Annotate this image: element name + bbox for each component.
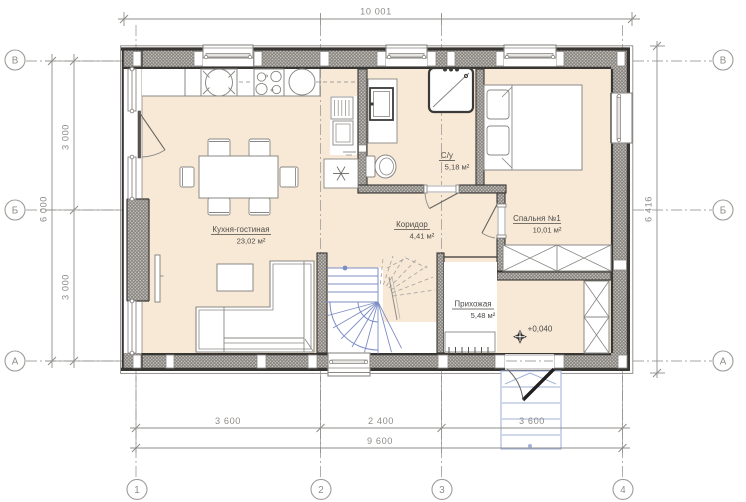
svg-text:В: В <box>720 55 727 66</box>
svg-text:5,18 м²: 5,18 м² <box>445 163 470 172</box>
svg-text:Прихожая: Прихожая <box>454 300 491 309</box>
svg-text:А: А <box>720 356 727 367</box>
svg-text:Кухня-гостиная: Кухня-гостиная <box>212 225 269 234</box>
svg-text:2: 2 <box>318 485 323 496</box>
svg-text:3 600: 3 600 <box>215 416 241 426</box>
svg-text:Спальня №1: Спальня №1 <box>513 214 561 223</box>
svg-text:3: 3 <box>439 485 445 496</box>
svg-text:10,01 м²: 10,01 м² <box>533 226 562 235</box>
svg-text:6 000: 6 000 <box>39 196 49 222</box>
svg-text:Б: Б <box>720 205 726 216</box>
svg-text:23,02 м²: 23,02 м² <box>237 237 266 246</box>
svg-text:В: В <box>12 55 19 66</box>
svg-text:10 001: 10 001 <box>360 7 392 17</box>
svg-text:6 416: 6 416 <box>644 196 654 222</box>
svg-text:3 000: 3 000 <box>61 274 71 300</box>
svg-text:4,41 м²: 4,41 м² <box>410 232 435 241</box>
svg-text:3 000: 3 000 <box>61 124 71 150</box>
svg-text:Б: Б <box>12 205 18 216</box>
svg-text:А: А <box>12 356 19 367</box>
svg-text:3 600: 3 600 <box>519 416 545 426</box>
svg-text:5,48 м²: 5,48 м² <box>471 311 496 320</box>
svg-text:С/у: С/у <box>441 151 453 160</box>
svg-text:9 600: 9 600 <box>367 436 393 446</box>
svg-text:4: 4 <box>620 485 626 496</box>
svg-text:+0,040: +0,040 <box>528 325 553 334</box>
svg-text:2 400: 2 400 <box>368 416 394 426</box>
svg-text:1: 1 <box>134 485 139 496</box>
svg-text:Коридор: Коридор <box>396 220 428 229</box>
